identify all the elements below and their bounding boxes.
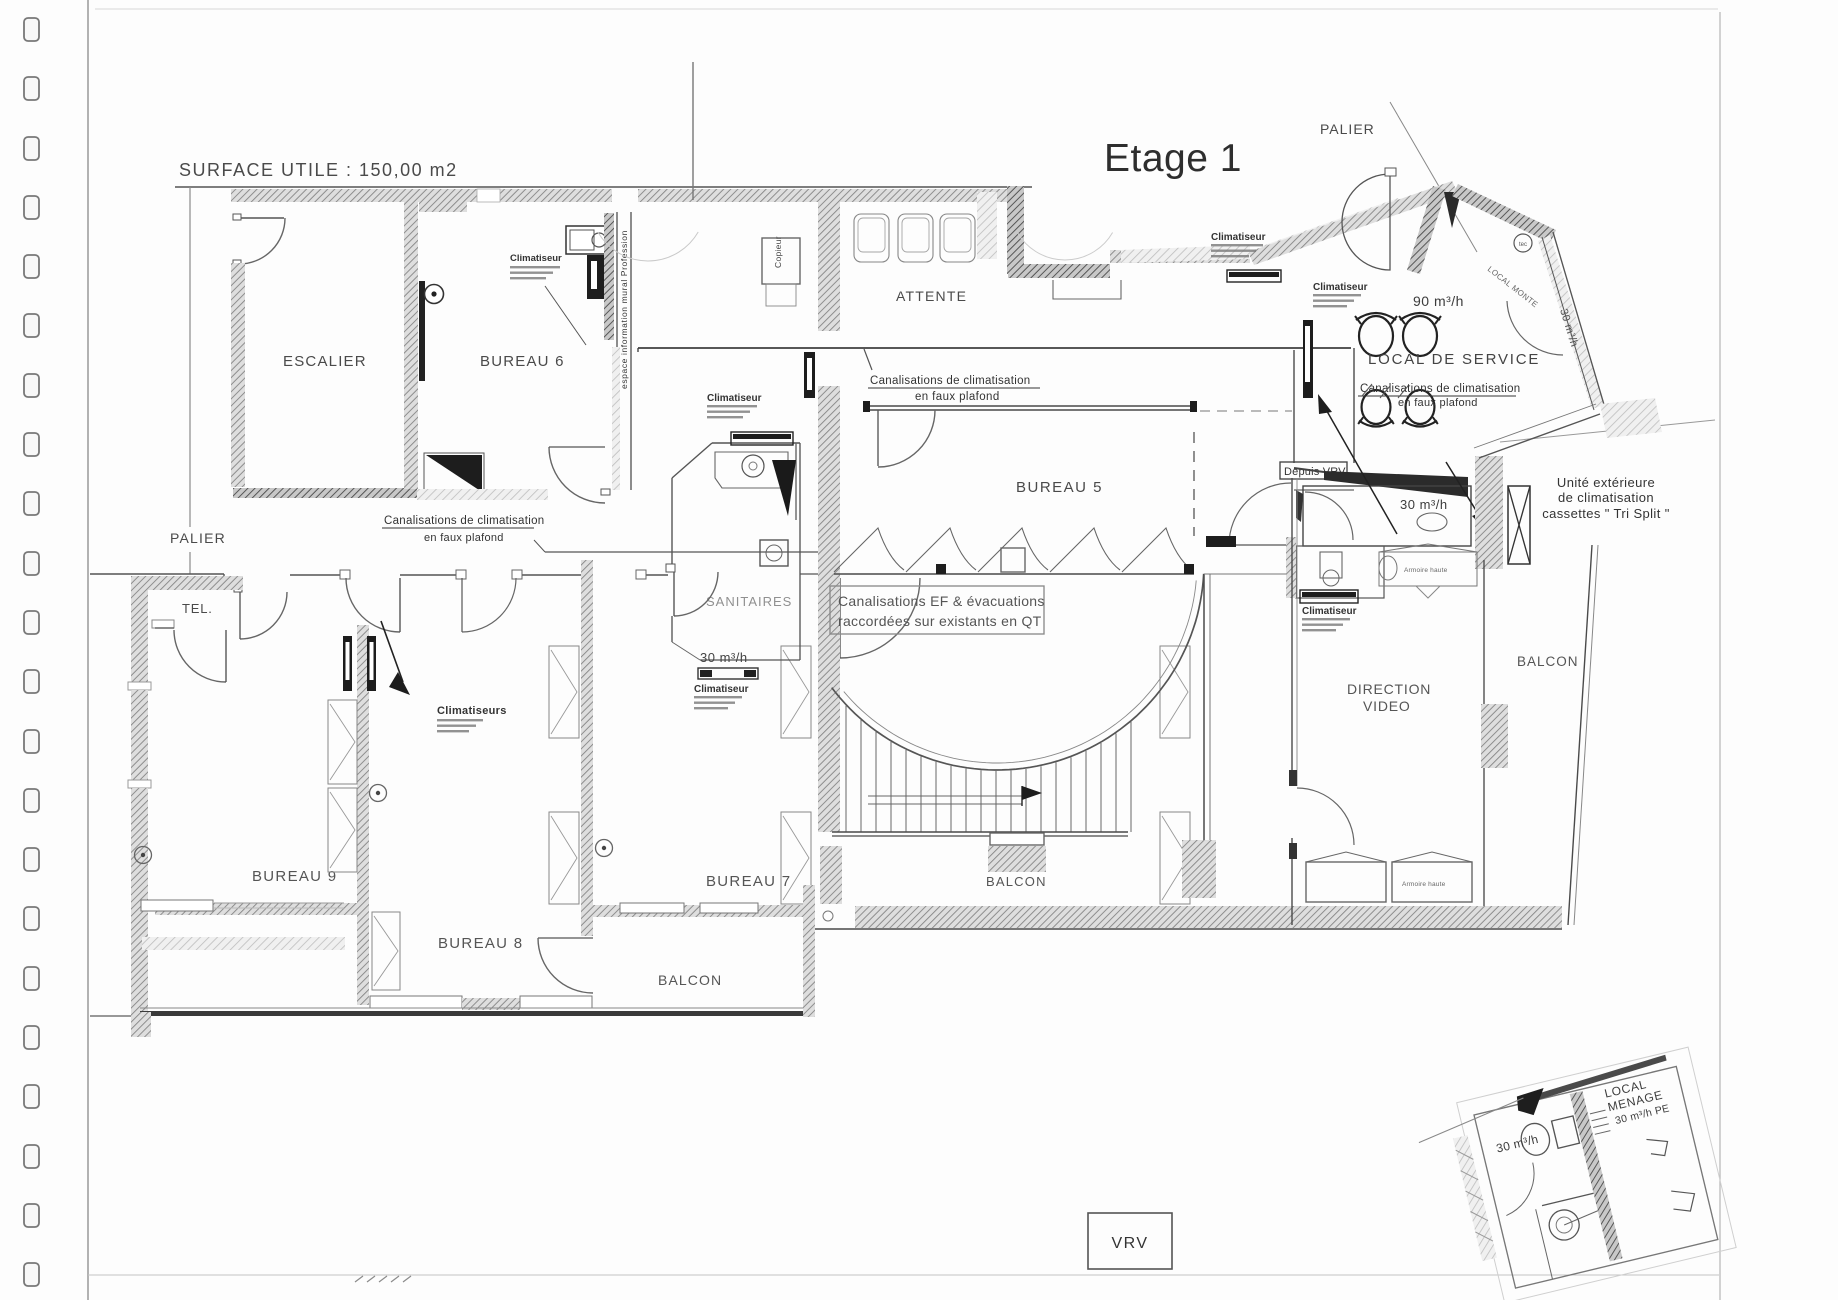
svg-text:cassettes " Tri Split ": cassettes " Tri Split " [1542, 506, 1670, 521]
svg-text:Climatiseur: Climatiseur [510, 253, 562, 264]
svg-text:BUREAU 6: BUREAU 6 [480, 353, 565, 370]
svg-text:PALIER: PALIER [1320, 121, 1375, 137]
svg-text:BUREAU 5: BUREAU 5 [1016, 479, 1103, 496]
svg-text:ESCALIER: ESCALIER [283, 353, 367, 370]
svg-text:BALCON: BALCON [658, 972, 722, 988]
svg-text:Copieur: Copieur [773, 236, 783, 268]
svg-text:LOCAL DE SERVICE: LOCAL DE SERVICE [1368, 351, 1540, 368]
svg-text:tec: tec [1519, 242, 1527, 248]
svg-text:VRV: VRV [1111, 1235, 1148, 1252]
svg-text:Climatiseur: Climatiseur [1313, 282, 1368, 293]
svg-text:Climatiseur: Climatiseur [694, 684, 749, 695]
svg-text:BALCON: BALCON [1517, 654, 1579, 669]
svg-text:Canalisations de climatisation: Canalisations de climatisation [384, 515, 545, 527]
svg-text:Climatiseur: Climatiseur [1211, 232, 1266, 243]
svg-text:Etage 1: Etage 1 [1104, 137, 1242, 180]
svg-text:SURFACE UTILE : 150,00 m2: SURFACE UTILE : 150,00 m2 [179, 160, 458, 180]
svg-text:BUREAU 8: BUREAU 8 [438, 935, 523, 952]
svg-text:VIDEO: VIDEO [1363, 698, 1411, 714]
svg-text:Armoire haute: Armoire haute [1404, 567, 1448, 574]
svg-text:Canalisations EF & évacuations: Canalisations EF & évacuations [838, 593, 1045, 609]
svg-text:TEL.: TEL. [182, 601, 213, 616]
svg-text:Climatiseurs: Climatiseurs [437, 705, 507, 717]
svg-text:de climatisation: de climatisation [1558, 490, 1654, 505]
svg-text:ATTENTE: ATTENTE [896, 288, 967, 304]
svg-text:30 m³/h: 30 m³/h [1400, 497, 1448, 512]
svg-text:Climatiseur: Climatiseur [707, 393, 762, 404]
svg-text:raccordées sur existants en QT: raccordées sur existants en QT [838, 613, 1042, 629]
svg-text:Canalisations de climatisation: Canalisations de climatisation [870, 375, 1031, 387]
svg-text:PALIER: PALIER [170, 530, 226, 546]
svg-text:en faux plafond: en faux plafond [915, 391, 1000, 403]
svg-text:en faux plafond: en faux plafond [424, 532, 504, 544]
svg-text:SANITAIRES: SANITAIRES [706, 594, 792, 609]
svg-text:30 m³/h: 30 m³/h [700, 650, 748, 665]
svg-text:BALCON: BALCON [986, 874, 1047, 889]
svg-text:90 m³/h: 90 m³/h [1413, 293, 1464, 309]
svg-text:en faux plafond: en faux plafond [1398, 397, 1478, 409]
svg-text:BUREAU 7: BUREAU 7 [706, 873, 791, 890]
svg-text:Unité extérieure: Unité extérieure [1557, 475, 1655, 490]
svg-text:DIRECTION: DIRECTION [1347, 681, 1431, 697]
svg-text:Climatiseur: Climatiseur [1302, 606, 1357, 617]
svg-text:BUREAU 9: BUREAU 9 [252, 868, 337, 885]
svg-text:Armoire haute: Armoire haute [1402, 881, 1446, 888]
